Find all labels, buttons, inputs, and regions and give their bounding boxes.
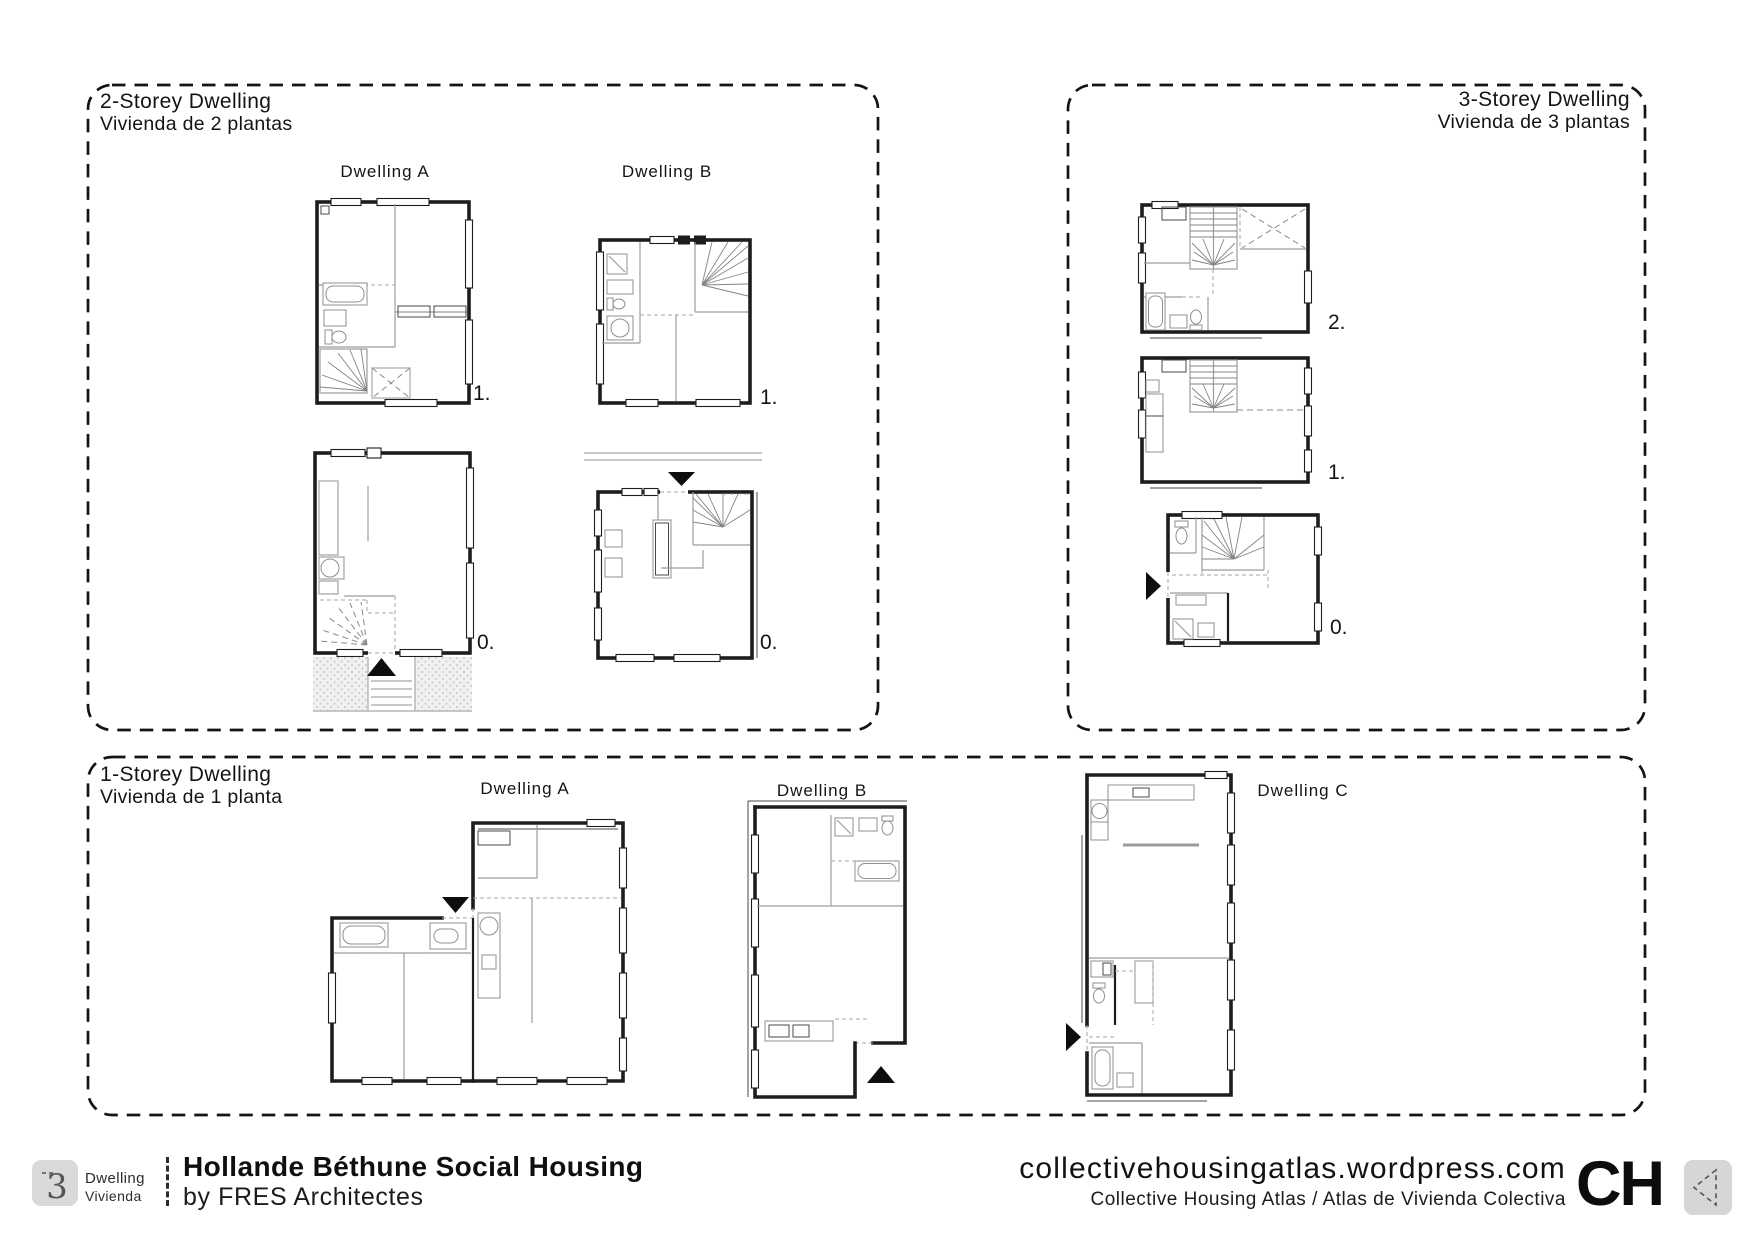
plan-drawings bbox=[0, 0, 1754, 1240]
closet bbox=[478, 831, 510, 845]
bathtub bbox=[855, 861, 899, 881]
level-label-a0: 0. bbox=[477, 631, 495, 655]
shower bbox=[835, 818, 853, 836]
level-label-b0: 0. bbox=[760, 631, 778, 655]
kitchen-counter bbox=[1091, 785, 1194, 840]
winder-stair-dashed bbox=[320, 600, 367, 645]
ch-logo-box bbox=[1684, 1160, 1732, 1215]
cabinet bbox=[1198, 623, 1214, 637]
level-label-3s-1: 1. bbox=[1328, 461, 1346, 485]
double-stair bbox=[1190, 360, 1237, 412]
dwelling-count-badge: 3 bbox=[32, 1160, 78, 1206]
bathtub bbox=[1092, 1047, 1113, 1089]
bathtub bbox=[340, 923, 388, 947]
panel-frame-1storey bbox=[88, 757, 1645, 1115]
kitchen-counter bbox=[765, 1021, 833, 1041]
badge-dash-accent: 3 bbox=[32, 1160, 78, 1206]
dwelling-a-label-1storey: Dwelling A bbox=[480, 779, 569, 799]
panel-2storey-title-block: 2-Storey Dwelling Vivienda de 2 plantas bbox=[100, 90, 292, 135]
plan-1storey-c bbox=[1066, 772, 1235, 1102]
entry-arrow-up bbox=[867, 1066, 895, 1083]
panel-3storey-subtitle: Vivienda de 3 plantas bbox=[1438, 112, 1630, 134]
toilet bbox=[607, 298, 625, 310]
winder-stair bbox=[1202, 517, 1264, 570]
winder-stair bbox=[320, 349, 367, 393]
vanity bbox=[607, 280, 633, 294]
cabinet bbox=[1117, 1073, 1133, 1087]
plan-3storey-level2 bbox=[1139, 202, 1312, 339]
toilet bbox=[325, 330, 346, 344]
panel-1storey-title-block: 1-Storey Dwelling Vivienda de 1 planta bbox=[100, 763, 282, 808]
toilet bbox=[1190, 310, 1202, 330]
dwelling-b-label-2storey: Dwelling B bbox=[622, 162, 712, 182]
vanity bbox=[324, 310, 346, 326]
level-label-a1: 1. bbox=[473, 382, 491, 406]
counter bbox=[605, 558, 622, 577]
fan-stair bbox=[695, 242, 748, 312]
entry-arrow-down bbox=[442, 897, 469, 913]
project-title: Hollande Béthune Social Housing bbox=[183, 1151, 643, 1183]
panel-frame-3storey bbox=[1068, 85, 1645, 730]
plan-sheet: { "panels": { "two_storey": { "title": "… bbox=[0, 0, 1754, 1240]
left-arrow-icon bbox=[1684, 1160, 1732, 1215]
double-stair bbox=[1190, 207, 1237, 269]
level-label-3s-0: 0. bbox=[1330, 616, 1348, 640]
vanity bbox=[1170, 315, 1187, 328]
level-label-3s-2: 2. bbox=[1328, 311, 1346, 335]
toilet bbox=[882, 816, 893, 835]
plan-1storey-a bbox=[329, 820, 627, 1085]
kitchen-counter bbox=[478, 913, 500, 998]
plan-2storey-b-level1 bbox=[597, 236, 751, 407]
closet bbox=[1135, 961, 1153, 1003]
counter bbox=[605, 530, 622, 547]
panel-2storey-title: 2-Storey Dwelling bbox=[100, 90, 292, 114]
panel-2storey-subtitle: Vivienda de 2 plantas bbox=[100, 114, 292, 136]
vanity bbox=[859, 818, 877, 831]
plan-2storey-b-level0 bbox=[584, 453, 762, 662]
footer-divider bbox=[166, 1157, 169, 1206]
toilet bbox=[1175, 521, 1188, 544]
site-name: Collective Housing Atlas / Atlas de Vivi… bbox=[1019, 1189, 1566, 1211]
fan-stair bbox=[693, 492, 750, 545]
entry-arrow-up bbox=[367, 658, 396, 676]
shower bbox=[607, 254, 627, 274]
dwelling-a-label-2storey: Dwelling A bbox=[340, 162, 429, 182]
counter bbox=[1176, 595, 1206, 605]
dwelling-c-label-1storey: Dwelling C bbox=[1257, 781, 1348, 801]
plan-3storey-level1 bbox=[1139, 358, 1312, 488]
entry-arrow-down bbox=[668, 472, 695, 486]
void-x bbox=[372, 368, 410, 398]
project-byline: by FRES Architectes bbox=[183, 1183, 424, 1212]
kitchen-counter bbox=[319, 481, 344, 594]
badge-label-vivienda: Vivienda bbox=[85, 1188, 142, 1204]
entry-arrow-right bbox=[1146, 572, 1161, 600]
shower bbox=[1173, 619, 1193, 639]
bathtub bbox=[323, 283, 367, 305]
kitchen-counter bbox=[1146, 380, 1163, 452]
badge-label-dwelling: Dwelling bbox=[85, 1170, 145, 1187]
shower-basin bbox=[430, 923, 466, 949]
bathtub bbox=[1146, 293, 1165, 330]
panel-1storey-title: 1-Storey Dwelling bbox=[100, 763, 282, 787]
void-x bbox=[1240, 207, 1306, 249]
plan-2storey-a-level1 bbox=[317, 199, 473, 407]
kitchen-island bbox=[653, 494, 671, 578]
level-label-b1: 1. bbox=[760, 386, 778, 410]
panel-1storey-subtitle: Vivienda de 1 planta bbox=[100, 787, 282, 809]
ch-logo-text: CH bbox=[1576, 1148, 1663, 1220]
vanity bbox=[1091, 961, 1113, 977]
entry-arrow-right bbox=[1066, 1023, 1081, 1051]
dwelling-b-label-1storey: Dwelling B bbox=[777, 781, 867, 801]
plan-1storey-b bbox=[748, 801, 907, 1097]
entry-ground bbox=[313, 657, 472, 711]
plan-2storey-a-level0 bbox=[313, 448, 474, 711]
panel-3storey-title: 3-Storey Dwelling bbox=[1438, 88, 1630, 112]
site-url: collectivehousingatlas.wordpress.com bbox=[1019, 1152, 1566, 1186]
plan-3storey-level0 bbox=[1146, 512, 1322, 647]
site-block: collectivehousingatlas.wordpress.com Col… bbox=[1019, 1152, 1566, 1211]
washer bbox=[607, 316, 633, 340]
toilet bbox=[1093, 983, 1105, 1003]
badge-number-glyph: 3 bbox=[46, 1167, 68, 1206]
panel-3storey-title-block: 3-Storey Dwelling Vivienda de 3 plantas bbox=[1438, 88, 1630, 133]
